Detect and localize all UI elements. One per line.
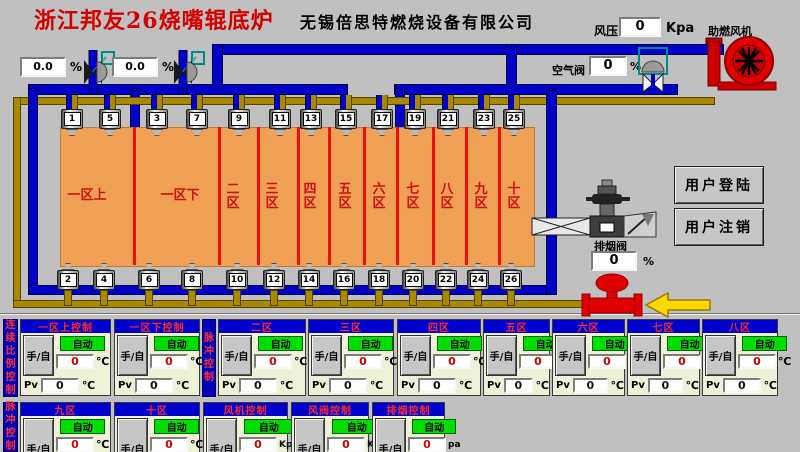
burner-body: 6 — [138, 270, 160, 290]
manual-auto-button[interactable]: 手/自 — [705, 335, 736, 376]
burner-body: 22 — [435, 270, 457, 290]
pv-display: 0 — [723, 378, 761, 393]
gas-feed-pipe — [484, 95, 490, 109]
burner-nozzle-icon — [406, 263, 420, 270]
zone-label: 十 区 — [507, 183, 520, 211]
hmi-screen: 浙江邦友26烧嘴辊底炉 无锡倍思特燃烧设备有限公司 一区上一区下二 区三 区四 … — [0, 0, 800, 452]
gas-feed-pipe — [239, 95, 245, 109]
gas-feed-pipe — [507, 290, 515, 306]
burner-top: 23 — [472, 95, 496, 136]
burner-nozzle-icon — [471, 263, 485, 270]
setpoint-display[interactable]: 0 — [663, 354, 701, 369]
burner-bottom: 24 — [466, 263, 490, 306]
setpoint-display[interactable]: 0 — [239, 437, 277, 452]
gas-main-left — [13, 97, 21, 308]
burner-number: 11 — [272, 112, 289, 126]
burner-number: 10 — [229, 273, 246, 287]
gas-feed-pipe — [375, 290, 383, 306]
burner-body: 1 — [61, 109, 83, 129]
burner-number: 22 — [438, 273, 455, 287]
burner-number: 19 — [407, 112, 424, 126]
pv-display: 0 — [418, 378, 456, 393]
setpoint-display[interactable]: 0 — [433, 354, 471, 369]
gas-feed-pipe — [197, 95, 203, 109]
burner-nozzle-icon — [97, 263, 111, 270]
pv-label: Pv — [631, 380, 645, 391]
burner-top: 9 — [227, 95, 251, 136]
zone-divider-line — [432, 127, 435, 265]
burner-nozzle-icon — [190, 129, 204, 136]
burner-nozzle-icon — [150, 129, 164, 136]
air-header-right — [394, 84, 678, 95]
burner-bottom: 16 — [332, 263, 356, 306]
zone-label: 九 区 — [474, 183, 487, 211]
burner-nozzle-icon — [339, 129, 353, 136]
burner-feed-pipes — [340, 95, 352, 109]
manual-auto-button[interactable]: 手/自 — [23, 335, 54, 376]
burner-number: 6 — [141, 273, 158, 287]
pv-display: 0 — [135, 378, 173, 393]
panel-title: 风阀控制 — [292, 403, 368, 416]
control-valve-icon — [80, 50, 116, 94]
pv-display: 0 — [239, 378, 277, 393]
burner-nozzle-icon — [439, 263, 453, 270]
exhaust-valve-display[interactable]: 0 — [591, 251, 637, 271]
burner-number: 12 — [266, 273, 283, 287]
mode-bar: 脉 冲 控 制 — [3, 402, 18, 452]
setpoint-display[interactable]: 0 — [56, 437, 94, 452]
burner-bottom: 22 — [434, 263, 458, 306]
burner-number: 8 — [184, 273, 201, 287]
setpoint-display[interactable]: 0 — [254, 354, 292, 369]
setpoint-display[interactable]: 0 — [327, 437, 365, 452]
burner-bottom: 12 — [262, 263, 286, 306]
burner-nozzle-icon — [232, 129, 246, 136]
gas-feed-pipe — [72, 95, 78, 109]
zone-label: 三 区 — [265, 183, 278, 211]
gas-feed-pipe — [145, 290, 153, 306]
control-panel: 排烟控制手/自自动0pa — [372, 402, 445, 452]
setpoint-unit: ℃ — [96, 438, 109, 451]
user-logout-button[interactable]: 用户注销 — [674, 208, 764, 246]
zone-divider-line — [363, 127, 366, 265]
burner-body: 20 — [402, 270, 424, 290]
burner-bottom: 20 — [401, 263, 425, 306]
auto-indicator: 自动 — [258, 336, 303, 351]
burner-top: 21 — [436, 95, 460, 136]
pv-display: 0 — [41, 378, 79, 393]
burner-number: 16 — [336, 273, 353, 287]
air-valve-icon — [637, 46, 669, 92]
burner-top: 25 — [502, 95, 526, 136]
panel-title: 一区下控制 — [115, 320, 199, 333]
manual-auto-button[interactable]: 手/自 — [311, 335, 342, 376]
burner-nozzle-icon — [103, 129, 117, 136]
panel-title: 排烟控制 — [373, 403, 444, 416]
panel-title: 五区 — [484, 320, 549, 333]
burner-body: 4 — [93, 270, 115, 290]
setpoint-unit: ℃ — [294, 355, 307, 368]
burner-number: 25 — [506, 112, 523, 126]
auto-indicator: 自动 — [348, 336, 393, 351]
manual-auto-button[interactable]: 手/自 — [294, 418, 325, 452]
pv-label: Pv — [312, 380, 326, 391]
mode-bar: 连 续 比 例 控 制 — [3, 319, 18, 397]
burner-nozzle-icon — [441, 129, 455, 136]
burner-number: 23 — [476, 112, 493, 126]
burner-body: 7 — [186, 109, 208, 129]
panel-title: 三区 — [309, 320, 393, 333]
burner-number: 4 — [96, 273, 113, 287]
zone-label: 八 区 — [440, 183, 453, 211]
burner-nozzle-icon — [185, 263, 199, 270]
panel-title: 八区 — [703, 320, 777, 333]
control-panel: 三区手/自自动0℃Pv0℃ — [308, 319, 394, 396]
pv-unit: ℃ — [459, 379, 472, 392]
burner-body: 24 — [467, 270, 489, 290]
burner-number: 1 — [64, 112, 81, 126]
control-panel: 四区手/自自动0℃Pv0℃ — [397, 319, 481, 396]
control-panel: 五区手/自自动0℃Pv0℃ — [483, 319, 550, 396]
burner-feed-pipes — [442, 95, 454, 109]
burner-body: 11 — [269, 109, 291, 129]
burner-nozzle-icon — [267, 263, 281, 270]
burner-body: 3 — [146, 109, 168, 129]
setpoint-display[interactable]: 0 — [344, 354, 382, 369]
burner-feed-pipes — [274, 95, 286, 109]
burner-number: 7 — [189, 112, 206, 126]
company-title: 无锡倍思特燃烧设备有限公司 — [300, 9, 534, 33]
burner-nozzle-icon — [142, 263, 156, 270]
valve2-position-display[interactable]: 0.0 — [112, 57, 158, 77]
gas-feed-pipe — [442, 290, 450, 306]
gas-feed-pipe — [270, 290, 278, 306]
setpoint-unit: pa — [448, 440, 461, 450]
exhaust-valve-unit: % — [643, 255, 654, 268]
auto-indicator: 自动 — [60, 419, 105, 434]
pv-display: 0 — [648, 378, 683, 393]
burner-body: 13 — [300, 109, 322, 129]
gas-feed-pipe — [409, 290, 417, 306]
zone-label: 四 区 — [303, 183, 316, 211]
auto-indicator: 自动 — [244, 419, 294, 434]
burner-body: 26 — [500, 270, 522, 290]
zone-label: 五 区 — [338, 183, 351, 211]
pv-unit: ℃ — [764, 379, 777, 392]
burner-nozzle-icon — [302, 263, 316, 270]
pv-unit: ℃ — [280, 379, 293, 392]
gas-feed-pipe — [474, 290, 482, 306]
control-panel: 十区手/自自动0℃ — [114, 402, 200, 452]
gas-feed-pipe — [382, 95, 388, 109]
burner-feed-pipes — [508, 95, 520, 109]
setpoint-display[interactable]: 0 — [150, 437, 188, 452]
burner-top: 17 — [370, 95, 394, 136]
pv-unit: ℃ — [370, 379, 383, 392]
control-valve-icon — [170, 50, 206, 94]
pv-display: 0 — [329, 378, 367, 393]
burner-nozzle-icon — [375, 129, 389, 136]
gas-feed-pipe — [514, 95, 520, 109]
burner-body: 18 — [368, 270, 390, 290]
burner-number: 13 — [303, 112, 320, 126]
pv-label: Pv — [401, 380, 415, 391]
pv-unit: ℃ — [82, 379, 95, 392]
burner-feed-pipes — [305, 95, 317, 109]
pv-display: 0 — [504, 378, 533, 393]
setpoint-display[interactable]: 0 — [408, 437, 446, 452]
burner-nozzle-icon — [477, 129, 491, 136]
pv-unit: ℃ — [686, 379, 699, 392]
burner-top: 11 — [268, 95, 292, 136]
panel-title: 一区上控制 — [21, 320, 110, 333]
control-panel: 九区手/自自动0℃ — [20, 402, 111, 452]
burner-body: 21 — [437, 109, 459, 129]
setpoint-display[interactable]: 0 — [738, 354, 776, 369]
zone-divider-line — [396, 127, 399, 265]
burner-nozzle-icon — [372, 263, 386, 270]
burner-body: 10 — [226, 270, 248, 290]
burner-feed-pipes — [191, 95, 203, 109]
burner-nozzle-icon — [230, 263, 244, 270]
manual-auto-button[interactable]: 手/自 — [486, 335, 517, 376]
burner-number: 17 — [374, 112, 391, 126]
burner-feed-pipes — [66, 95, 78, 109]
zone-divider-line — [328, 127, 331, 265]
burner-bottom: 6 — [137, 263, 161, 306]
control-panel: 一区下控制手/自自动0℃Pv0℃ — [114, 319, 200, 396]
setpoint-unit: ℃ — [96, 355, 109, 368]
pv-unit: ℃ — [536, 379, 549, 392]
burner-feed-pipes — [376, 95, 388, 109]
pv-label: Pv — [706, 380, 720, 391]
setpoint-display[interactable]: 0 — [56, 354, 94, 369]
gas-feed-pipe — [110, 95, 116, 109]
burner-feed-pipes — [233, 95, 245, 109]
zone-divider-line — [297, 127, 300, 265]
setpoint-display[interactable]: 0 — [588, 354, 626, 369]
burner-number: 3 — [149, 112, 166, 126]
burner-feed-pipes — [409, 95, 421, 109]
gas-feed-pipe — [64, 290, 72, 306]
burner-number: 2 — [60, 273, 77, 287]
gas-feed-pipe — [100, 290, 108, 306]
burner-number: 5 — [102, 112, 119, 126]
zone-divider-line — [218, 127, 221, 265]
air-pipe-left — [28, 88, 38, 294]
exhaust-damper-icon — [528, 170, 658, 238]
manual-auto-button[interactable]: 手/自 — [117, 418, 148, 452]
valve1-position-display[interactable]: 0.0 — [20, 57, 66, 77]
pv-label: Pv — [118, 380, 132, 391]
burner-top: 7 — [185, 95, 209, 136]
manual-auto-button[interactable]: 手/自 — [221, 335, 252, 376]
zone-divider-line — [465, 127, 468, 265]
burner-body: 16 — [333, 270, 355, 290]
panel-title: 风机控制 — [204, 403, 287, 416]
burner-nozzle-icon — [408, 129, 422, 136]
zone-label: 一区下 — [160, 189, 199, 203]
wind-pressure-display: 0 — [619, 17, 661, 37]
burner-number: 21 — [440, 112, 457, 126]
burner-body: 8 — [181, 270, 203, 290]
control-panel: 六区手/自自动0℃Pv0℃ — [552, 319, 625, 396]
control-panel: 风阀控制手/自自动0Kpa — [291, 402, 369, 452]
combustion-fan-icon — [704, 34, 782, 92]
control-panel: 八区手/自自动0℃Pv0℃ — [702, 319, 778, 396]
burner-body: 12 — [263, 270, 285, 290]
gas-feed-pipe — [346, 95, 352, 109]
burner-body: 14 — [298, 270, 320, 290]
burner-body: 2 — [57, 270, 79, 290]
page-title: 浙江邦友26烧嘴辊底炉 — [34, 3, 274, 35]
manual-auto-button[interactable]: 手/自 — [375, 418, 406, 452]
panel-title: 七区 — [628, 320, 699, 333]
auto-indicator: 自动 — [437, 336, 482, 351]
manual-auto-button[interactable]: 手/自 — [206, 418, 237, 452]
panel-title: 九区 — [21, 403, 110, 416]
burner-body: 25 — [503, 109, 525, 129]
zone-divider-line — [257, 127, 260, 265]
auto-indicator: 自动 — [60, 336, 105, 351]
burner-nozzle-icon — [337, 263, 351, 270]
gas-feed-pipe — [448, 95, 454, 109]
burner-bottom: 8 — [180, 263, 204, 306]
wind-pressure-label: 风压 — [594, 22, 618, 39]
auto-indicator: 自动 — [412, 419, 456, 434]
burner-body: 23 — [473, 109, 495, 129]
burner-nozzle-icon — [61, 263, 75, 270]
burner-bottom: 18 — [367, 263, 391, 306]
control-panel: 一区上控制手/自自动0℃Pv0℃ — [20, 319, 111, 396]
zone-divider-line — [133, 127, 136, 265]
gas-feed-pipe — [233, 290, 241, 306]
zone-label: 七 区 — [406, 183, 419, 211]
auto-indicator: 自动 — [154, 419, 199, 434]
setpoint-display[interactable]: 0 — [150, 354, 188, 369]
burner-bottom: 2 — [56, 263, 80, 306]
burner-top: 1 — [60, 95, 84, 136]
auto-indicator: 自动 — [154, 336, 199, 351]
setpoint-unit: ℃ — [190, 355, 203, 368]
burner-nozzle-icon — [273, 129, 287, 136]
burner-number: 9 — [231, 112, 248, 126]
gas-feed-pipe — [340, 290, 348, 306]
burner-number: 20 — [405, 273, 422, 287]
pv-unit: ℃ — [611, 379, 624, 392]
burner-nozzle-icon — [304, 129, 318, 136]
burner-nozzle-icon — [65, 129, 79, 136]
burner-number: 18 — [371, 273, 388, 287]
manual-auto-button[interactable]: 手/自 — [117, 335, 148, 376]
burner-top: 5 — [98, 95, 122, 136]
burner-feed-pipes — [478, 95, 490, 109]
air-valve-display[interactable]: 0 — [589, 56, 627, 76]
panel-title: 十区 — [115, 403, 199, 416]
burner-body: 17 — [371, 109, 393, 129]
setpoint-unit: ℃ — [190, 438, 203, 451]
gas-feed-pipe — [188, 290, 196, 306]
burner-top: 3 — [145, 95, 169, 136]
burner-nozzle-icon — [507, 129, 521, 136]
pv-label: Pv — [556, 380, 570, 391]
pv-label: Pv — [487, 380, 501, 391]
burner-top: 13 — [299, 95, 323, 136]
control-panel: 二区手/自自动0℃Pv0℃ — [218, 319, 306, 396]
pv-unit: ℃ — [176, 379, 189, 392]
burner-number: 24 — [470, 273, 487, 287]
burner-body: 5 — [99, 109, 121, 129]
manual-auto-button[interactable]: 手/自 — [630, 335, 661, 376]
panel-title: 六区 — [553, 320, 624, 333]
panel-title: 四区 — [398, 320, 480, 333]
burner-number: 26 — [503, 273, 520, 287]
burner-number: 15 — [338, 112, 355, 126]
burner-feed-pipes — [104, 95, 116, 109]
flow-arrow-icon — [646, 293, 710, 317]
air-valve-label: 空气阀 — [552, 62, 585, 78]
gas-feed-pipe — [415, 95, 421, 109]
wind-pressure-unit: Kpa — [666, 21, 694, 36]
user-login-button[interactable]: 用户登陆 — [674, 166, 764, 204]
gas-feed-pipe — [157, 95, 163, 109]
gas-feed-pipe — [305, 290, 313, 306]
burner-feed-pipes — [151, 95, 163, 109]
panel-title: 二区 — [219, 320, 305, 333]
burner-bottom: 26 — [499, 263, 523, 306]
zone-label: 六 区 — [372, 183, 385, 211]
mode-bar: 脉 冲 控 制 — [202, 319, 216, 397]
manual-auto-button[interactable]: 手/自 — [23, 418, 54, 452]
zone-label: 二 区 — [226, 183, 239, 211]
control-panel: 七区手/自自动0℃Pv0℃ — [627, 319, 700, 396]
gas-feed-pipe — [280, 95, 286, 109]
burner-bottom: 4 — [92, 263, 116, 306]
pv-label: Pv — [222, 380, 236, 391]
burner-number: 14 — [301, 273, 318, 287]
setpoint-unit: ℃ — [384, 355, 397, 368]
gas-feed-pipe — [311, 95, 317, 109]
burner-body: 19 — [404, 109, 426, 129]
burner-top: 15 — [334, 95, 358, 136]
burner-body: 9 — [228, 109, 250, 129]
setpoint-unit: ℃ — [778, 355, 791, 368]
control-panel: 风机控制手/自自动0Kpa — [203, 402, 288, 452]
pv-label: Pv — [24, 380, 38, 391]
pv-display: 0 — [573, 378, 608, 393]
burner-bottom: 10 — [225, 263, 249, 306]
manual-auto-button[interactable]: 手/自 — [555, 335, 586, 376]
manual-auto-button[interactable]: 手/自 — [400, 335, 431, 376]
burner-body: 15 — [335, 109, 357, 129]
air-branch-1 — [130, 88, 140, 128]
zone-label: 一区上 — [67, 189, 106, 203]
zone-divider-line — [498, 127, 501, 265]
burner-bottom: 14 — [297, 263, 321, 306]
gas-valve-icon — [576, 272, 718, 318]
burner-nozzle-icon — [504, 263, 518, 270]
burner-top: 19 — [403, 95, 427, 136]
auto-indicator: 自动 — [742, 336, 787, 351]
